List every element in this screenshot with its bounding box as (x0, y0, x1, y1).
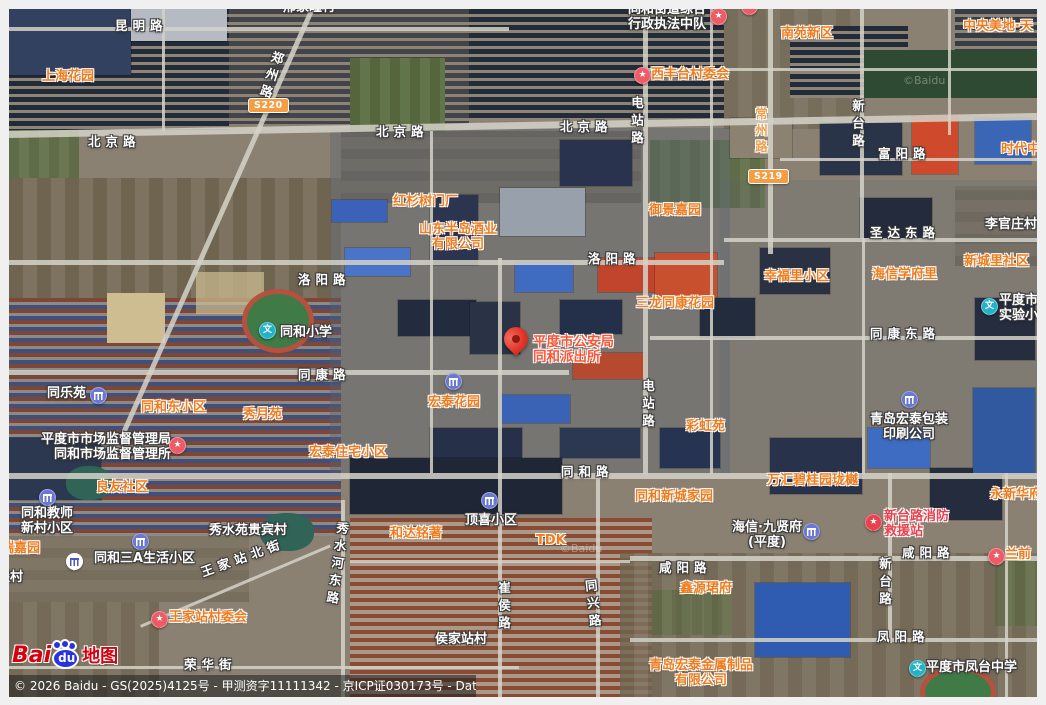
road-segment (9, 27, 509, 31)
map-label[interactable]: 邢家疃村 (283, 9, 335, 16)
building-roof (912, 116, 958, 174)
map-label[interactable]: 同和街道综合行政执法中队 (628, 9, 706, 32)
road-segment (862, 238, 865, 474)
baidu-watermark: ©Baidu (903, 74, 945, 87)
building-roof (560, 428, 640, 458)
map-label: 咸阳路 (902, 546, 955, 560)
map-label: 同康东路 (870, 327, 940, 341)
terrain-patch (652, 590, 732, 635)
road-segment (430, 131, 433, 473)
map-label[interactable]: 时代中 (1001, 143, 1037, 158)
building-roof (515, 262, 573, 292)
map-label: 洛阳路 (588, 252, 641, 266)
road-segment (9, 370, 569, 375)
map-label[interactable]: 良友社区 (96, 481, 148, 496)
map-label: 昆明路 (115, 19, 168, 33)
hotel-white-icon[interactable] (66, 553, 83, 570)
map-label: 北京路 (88, 135, 141, 149)
baidu-map-satellite-page: { "map": { "kind": "satellite", "labels"… (0, 0, 1046, 705)
residential-community-icon[interactable] (445, 373, 462, 390)
map-label[interactable]: 秀水苑贵宾村 (209, 524, 287, 539)
baidu-logo-ditu: 地图 (82, 642, 118, 668)
residential-community-icon[interactable] (803, 523, 820, 540)
map-label[interactable]: 平度市市场监督管理局同和市场监督管理所 (41, 433, 171, 462)
building-roof (973, 388, 1035, 474)
terrain-patch (107, 293, 165, 343)
pink-star-poi-icon[interactable]: ★ (988, 548, 1005, 565)
baidu-logo-du: du (58, 651, 75, 665)
pink-star-poi-icon[interactable]: ★ (634, 67, 651, 84)
map-label: 崔侯路 (496, 581, 510, 634)
map-label: 电站路 (640, 379, 654, 432)
map-label[interactable]: 顶喜小区 (465, 514, 517, 529)
map-label[interactable]: 幸福里小区 (764, 270, 829, 285)
map-label[interactable]: 山东半岛酒业有限公司 (419, 223, 497, 252)
baidu-paw-icon: du (52, 642, 79, 668)
school-wen-icon[interactable]: 文 (259, 322, 276, 339)
pink-star-poi-icon[interactable]: ★ (151, 611, 168, 628)
map-label[interactable]: 鑫源珺府 (680, 582, 732, 597)
road-segment (948, 9, 951, 135)
building-roof (560, 140, 632, 186)
road-shield-S219: S219 (748, 169, 789, 184)
map-attribution: © 2026 Baidu - GS(2025)4125号 - 甲测资字11111… (9, 675, 476, 697)
map-label[interactable]: 红杉树门厂 (393, 195, 458, 210)
map-label: 圣达东路 (870, 226, 940, 240)
baidu-logo[interactable]: Bai du 地图 (12, 642, 118, 668)
map-label[interactable]: 三龙同康花园 (636, 297, 714, 312)
map-label[interactable]: 中央美地·天 (963, 20, 1033, 35)
road-segment (350, 560, 630, 563)
stadium-track (242, 289, 314, 353)
road-segment (650, 336, 1037, 340)
residential-community-icon[interactable] (901, 391, 918, 408)
map-label[interactable]: 同和三A生活小区 (94, 552, 195, 567)
map-label[interactable]: 平度市实实验小学 (999, 294, 1037, 323)
map-label[interactable]: 同和新城家园 (635, 490, 713, 505)
road-shield-S220: S220 (248, 98, 289, 113)
residential-community-icon[interactable] (481, 492, 498, 509)
map-canvas[interactable]: 邢家疃村昆明路上海花园郑州路北京路北京路北京路同和街道综合行政执法中队西丰台村委… (9, 9, 1037, 697)
map-label: 北京路 (376, 125, 429, 139)
map-label[interactable]: 南苑新区 (781, 27, 833, 42)
map-label[interactable]: 御景嘉园 (649, 204, 701, 219)
map-label[interactable]: 同和东小区 (141, 401, 206, 416)
school-wen-icon[interactable]: 文 (981, 298, 998, 315)
building-roof (500, 395, 570, 423)
map-label: 新台路 (850, 99, 864, 152)
building-roof (398, 300, 476, 336)
map-label[interactable]: 银瑞嘉园 (9, 542, 40, 557)
building-roof (755, 583, 850, 657)
map-label[interactable]: 西丰台村委会 (651, 68, 729, 83)
map-label[interactable]: 青岛宏泰金属制品有限公司 (649, 659, 753, 688)
map-label[interactable]: 秀月苑 (243, 408, 282, 423)
road-segment (768, 9, 773, 254)
map-label[interactable]: 宏泰住宅小区 (309, 446, 387, 461)
residential-community-icon[interactable] (39, 489, 56, 506)
school-wen-icon[interactable]: 文 (909, 660, 926, 677)
map-label[interactable]: 和达铭著 (390, 527, 442, 542)
residential-community-icon[interactable] (90, 387, 107, 404)
map-label[interactable]: 王家站村委会 (169, 611, 247, 626)
building-roof (332, 200, 387, 222)
map-label: 同康路 (298, 368, 351, 382)
pink-star-poi-icon[interactable]: ★ (169, 437, 186, 454)
map-label[interactable]: 上海花园 (42, 70, 94, 85)
map-label[interactable]: 青岛宏泰包装印刷公司 (870, 413, 948, 442)
map-label: 同和路 (561, 465, 614, 479)
road-segment (630, 638, 1037, 642)
building-roof (430, 428, 522, 460)
map-label[interactable]: 彩虹苑 (686, 420, 725, 435)
map-label: 新台路 (877, 557, 891, 610)
map-label: 电站路 (629, 96, 643, 149)
building-roof (9, 9, 131, 75)
building-roof (350, 458, 562, 514)
map-label[interactable]: 宏泰花园 (428, 396, 480, 411)
map-label[interactable]: 里堡村 (9, 571, 23, 586)
terrain-patch (9, 178, 341, 298)
building-roof (560, 300, 622, 334)
map-label[interactable]: 平度市公安局同和派出所 (533, 335, 614, 365)
building-roof (500, 188, 585, 236)
map-label: 荣华街 (184, 658, 237, 672)
map-label: 洛阳路 (298, 273, 351, 287)
map-label[interactable]: 新城里社区 (964, 255, 1029, 270)
map-label: 北京路 (560, 120, 613, 134)
map-label[interactable]: TDK (536, 534, 566, 549)
map-label[interactable]: 海信学府里 (872, 268, 937, 283)
map-label: 富阳路 (878, 147, 931, 161)
map-label[interactable]: 平度市凤台中学 (926, 661, 1017, 676)
map-label[interactable]: 新台路消防救援站 (884, 510, 949, 539)
map-label[interactable]: 兰前 (1005, 548, 1031, 563)
map-label[interactable]: 万汇碧桂园珑樾 (767, 474, 858, 489)
road-segment (9, 473, 1037, 479)
map-label[interactable]: 海信·九贤府(平度) (732, 521, 802, 550)
map-label[interactable]: 同乐苑 (47, 387, 86, 402)
map-label[interactable]: 同和小学 (280, 326, 332, 341)
terrain-patch (995, 556, 1037, 626)
map-label[interactable]: 侯家站村 (435, 633, 487, 648)
map-label: 凤阳路 (877, 630, 930, 644)
map-label: 常州路 (753, 107, 767, 157)
fire-station-poi-icon[interactable]: ★ (865, 514, 882, 531)
baidu-logo-bai: Bai (12, 643, 51, 668)
map-label[interactable]: 永新华府 (990, 488, 1037, 503)
map-label[interactable]: 李官庄村 (985, 218, 1037, 233)
baidu-watermark: ©Baidu (560, 542, 602, 555)
map-label: 咸阳路 (659, 561, 712, 575)
terrain-patch (350, 58, 445, 133)
residential-community-icon[interactable] (132, 533, 149, 550)
map-label[interactable]: 同和教师新村小区 (21, 507, 73, 536)
